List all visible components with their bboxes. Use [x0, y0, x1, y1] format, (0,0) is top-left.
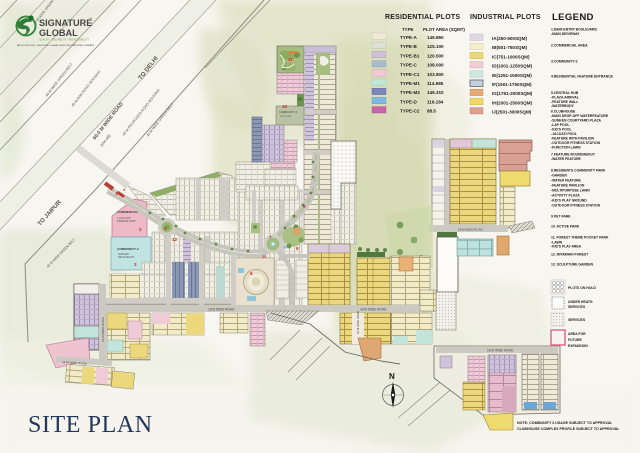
svg-text:TYPE-C: TYPE-C	[400, 63, 418, 68]
svg-text:IH(2001-2500SQM): IH(2001-2500SQM)	[492, 100, 533, 105]
svg-text:108.000: 108.000	[427, 63, 444, 68]
svg-text:IE(1251-1500SQM): IE(1251-1500SQM)	[492, 73, 532, 78]
svg-text:18 M WIDE ROAD: 18 M WIDE ROAD	[101, 316, 105, 342]
svg-text:TYPE-D: TYPE-D	[400, 99, 418, 104]
svg-text:IF(1501-1750SQM): IF(1501-1750SQM)	[492, 82, 532, 87]
svg-text:12: 12	[172, 237, 178, 242]
svg-text:149.310: 149.310	[427, 90, 444, 95]
svg-text:SIGNATURE: SIGNATURE	[39, 18, 92, 28]
svg-text:RESIDENTIAL PLOTS: RESIDENTIAL PLOTS	[385, 14, 460, 21]
svg-text:13. SCULPTURE GARDEN: 13. SCULPTURE GARDEN	[551, 263, 594, 267]
svg-text:88.5: 88.5	[427, 109, 436, 114]
svg-text:-MULTIPURPOSE LAWN: -MULTIPURPOSE LAWN	[551, 189, 590, 193]
svg-text:8.RESIDENTS COMMUNITY PARK: 8.RESIDENTS COMMUNITY PARK	[551, 169, 606, 173]
svg-text:11. FOREST THEME POCKET PARK: 11. FOREST THEME POCKET PARK	[551, 236, 609, 240]
svg-text:PREMIUM SHOP: PREMIUM SHOP	[117, 220, 136, 223]
svg-text:2.COMMERCIAL AREA: 2.COMMERCIAL AREA	[551, 44, 588, 48]
svg-text:IA(250-500SQM): IA(250-500SQM)	[492, 36, 527, 41]
svg-text:EXPANSION: EXPANSION	[568, 344, 588, 348]
svg-text:8: 8	[296, 246, 299, 251]
svg-text:-SUNKEN COURTYARD PLAZA: -SUNKEN COURTYARD PLAZA	[551, 119, 602, 123]
svg-text:2: 2	[139, 227, 142, 232]
svg-text:INDUSTRIAL PLOTS: INDUSTRIAL PLOTS	[470, 14, 541, 21]
svg-text:149.850: 149.850	[427, 35, 444, 40]
svg-text:COMMUNITY-2: COMMUNITY-2	[117, 247, 139, 251]
svg-text:3: 3	[134, 262, 137, 267]
svg-text:UNDER HEATH: UNDER HEATH	[568, 300, 593, 304]
svg-text:-FEATURE WITH PAVILION: -FEATURE WITH PAVILION	[551, 137, 594, 141]
svg-text:7: 7	[269, 235, 272, 240]
svg-text:-KID'S PLAY AREA: -KID'S PLAY AREA	[551, 245, 582, 249]
svg-text:LEGEND: LEGEND	[552, 12, 594, 23]
svg-text:SERVICES: SERVICES	[568, 318, 586, 322]
svg-text:9: 9	[303, 204, 306, 209]
svg-text:PROPOSED: PROPOSED	[280, 116, 292, 118]
svg-text:-FEATURE PAVILION: -FEATURE PAVILION	[551, 184, 585, 188]
svg-text:™: ™	[89, 17, 92, 21]
svg-text:SITE PLAN: SITE PLAN	[28, 412, 153, 438]
svg-text:120.500: 120.500	[427, 53, 444, 58]
svg-text:AN ISO 9001:2015, 14001:2015 &: AN ISO 9001:2015, 14001:2015 & OHSAS 450…	[17, 44, 95, 47]
svg-text:TYPE-C1: TYPE-C1	[400, 72, 420, 77]
svg-text:18 M WIDE ROAD: 18 M WIDE ROAD	[487, 349, 514, 353]
svg-text:18 M WIDE ROAD: 18 M WIDE ROAD	[208, 308, 235, 312]
svg-text:18 M WIDE ROAD: 18 M WIDE ROAD	[356, 311, 360, 334]
svg-text:PLOT AREA (SQMT): PLOT AREA (SQMT)	[423, 27, 465, 32]
svg-text:-MAIN DROP-OFF WATERFEATURE: -MAIN DROP-OFF WATERFEATURE	[551, 114, 609, 118]
svg-text:SERVICES: SERVICES	[568, 305, 586, 309]
svg-text:1: 1	[115, 191, 118, 196]
svg-text:FUTURE: FUTURE	[568, 338, 582, 342]
svg-text:10. ACTIVE PARK: 10. ACTIVE PARK	[551, 225, 580, 229]
svg-text:6: 6	[250, 271, 253, 276]
svg-text:10: 10	[282, 104, 288, 109]
svg-text:18 M WIDE ROAD: 18 M WIDE ROAD	[458, 227, 484, 231]
svg-text:COMMUNITY-3: COMMUNITY-3	[279, 110, 298, 114]
svg-text:1.MAIN ENTRY BOULEVARD: 1.MAIN ENTRY BOULEVARD	[551, 28, 597, 32]
svg-text:12. MIYAWAKI FOREST: 12. MIYAWAKI FOREST	[551, 253, 589, 257]
svg-text:4.RESIDENTIAL FEATURE ENTRANCE: 4.RESIDENTIAL FEATURE ENTRANCE	[551, 75, 614, 79]
svg-text:QUALITY . RELIABILITY . RESPON: QUALITY . RELIABILITY . RESPONSIBILITY	[39, 39, 90, 42]
svg-text:TYPE-B: TYPE-B	[400, 44, 418, 49]
svg-text:7.FEATURE ROUNDABOUT: 7.FEATURE ROUNDABOUT	[551, 153, 596, 157]
svg-text:116.184: 116.184	[427, 99, 444, 104]
svg-text:5: 5	[164, 226, 167, 231]
svg-text:125.100: 125.100	[427, 44, 444, 49]
svg-text:N: N	[389, 372, 395, 381]
svg-text:PLOTS ON HOLD: PLOTS ON HOLD	[568, 286, 596, 290]
svg-text:-JACUZZI POOL: -JACUZZI POOL	[551, 132, 577, 136]
svg-text:IJ(2501-3000SQM): IJ(2501-3000SQM)	[492, 110, 532, 115]
svg-text:NOTE: COMMUNITY 3 USAGE SUBJEC: NOTE: COMMUNITY 3 USAGE SUBJECT TO APPRO…	[517, 421, 613, 425]
svg-text:-KID'S POOL: -KID'S POOL	[551, 128, 572, 132]
svg-text:-MAIN DRIVEWAY: -MAIN DRIVEWAY	[551, 32, 580, 36]
svg-text:CLUBHOUSE COMPLEX PROFILE SUBJ: CLUBHOUSE COMPLEX PROFILE SUBJECT TO APP…	[517, 427, 620, 431]
svg-text:COMMERCIAL: COMMERCIAL	[117, 210, 138, 214]
svg-text:-LAP POOL: -LAP POOL	[551, 123, 569, 127]
svg-text:13: 13	[262, 254, 267, 259]
svg-text:-FUNCTION LAWN: -FUNCTION LAWN	[551, 146, 581, 150]
svg-text:-ACTIVITY PLAZA: -ACTIVITY PLAZA	[551, 194, 580, 198]
svg-text:TYPE-A: TYPE-A	[400, 35, 418, 40]
svg-text:TYPE-C2: TYPE-C2	[400, 109, 420, 114]
svg-text:TYPE-B1: TYPE-B1	[400, 53, 420, 58]
svg-text:6.CLUBHOUSE: 6.CLUBHOUSE	[551, 110, 576, 114]
svg-text:-KID'S PLAY GROUND: -KID'S PLAY GROUND	[551, 199, 587, 203]
svg-text:GLOBAL: GLOBAL	[39, 28, 78, 38]
svg-text:-WATER FEATURE: -WATER FEATURE	[551, 179, 582, 183]
svg-text:RESTAURANT: RESTAURANT	[118, 256, 135, 259]
svg-text:-OUTDOOR FITNESS STATION: -OUTDOOR FITNESS STATION	[551, 204, 601, 208]
svg-text:11: 11	[288, 57, 293, 62]
svg-text:114.985: 114.985	[427, 81, 444, 86]
svg-text:-PLAZA ARRIVAL: -PLAZA ARRIVAL	[551, 96, 579, 100]
svg-text:ID(1001-1250SQM): ID(1001-1250SQM)	[492, 64, 533, 69]
svg-text:TYPE: TYPE	[402, 27, 414, 32]
svg-text:TYPE-M1: TYPE-M1	[400, 81, 420, 86]
svg-text:18 M WIDE ROAD: 18 M WIDE ROAD	[360, 308, 387, 312]
svg-text:3.COMMUNITY-2: 3.COMMUNITY-2	[551, 60, 578, 64]
svg-text:IB(501-750SQM): IB(501-750SQM)	[492, 45, 527, 50]
svg-text:-GARDEN: -GARDEN	[551, 174, 567, 178]
svg-text:9.PET PARK: 9.PET PARK	[551, 215, 571, 219]
svg-text:-WATER FEATURE: -WATER FEATURE	[551, 157, 582, 161]
svg-text:AREA FOR: AREA FOR	[568, 332, 586, 336]
svg-text:5.CENTRAL HUB: 5.CENTRAL HUB	[551, 91, 579, 95]
svg-text:-WATERBODY: -WATERBODY	[551, 104, 575, 108]
svg-text:IC(751-1000SQM): IC(751-1000SQM)	[492, 54, 530, 59]
svg-text:103.800: 103.800	[427, 72, 444, 77]
svg-text:-OUTDOOR FITNESS STATION: -OUTDOOR FITNESS STATION	[551, 141, 601, 145]
svg-text:TYPE-M2: TYPE-M2	[400, 90, 420, 95]
svg-text:IG(1751-2000SQM): IG(1751-2000SQM)	[492, 91, 533, 96]
